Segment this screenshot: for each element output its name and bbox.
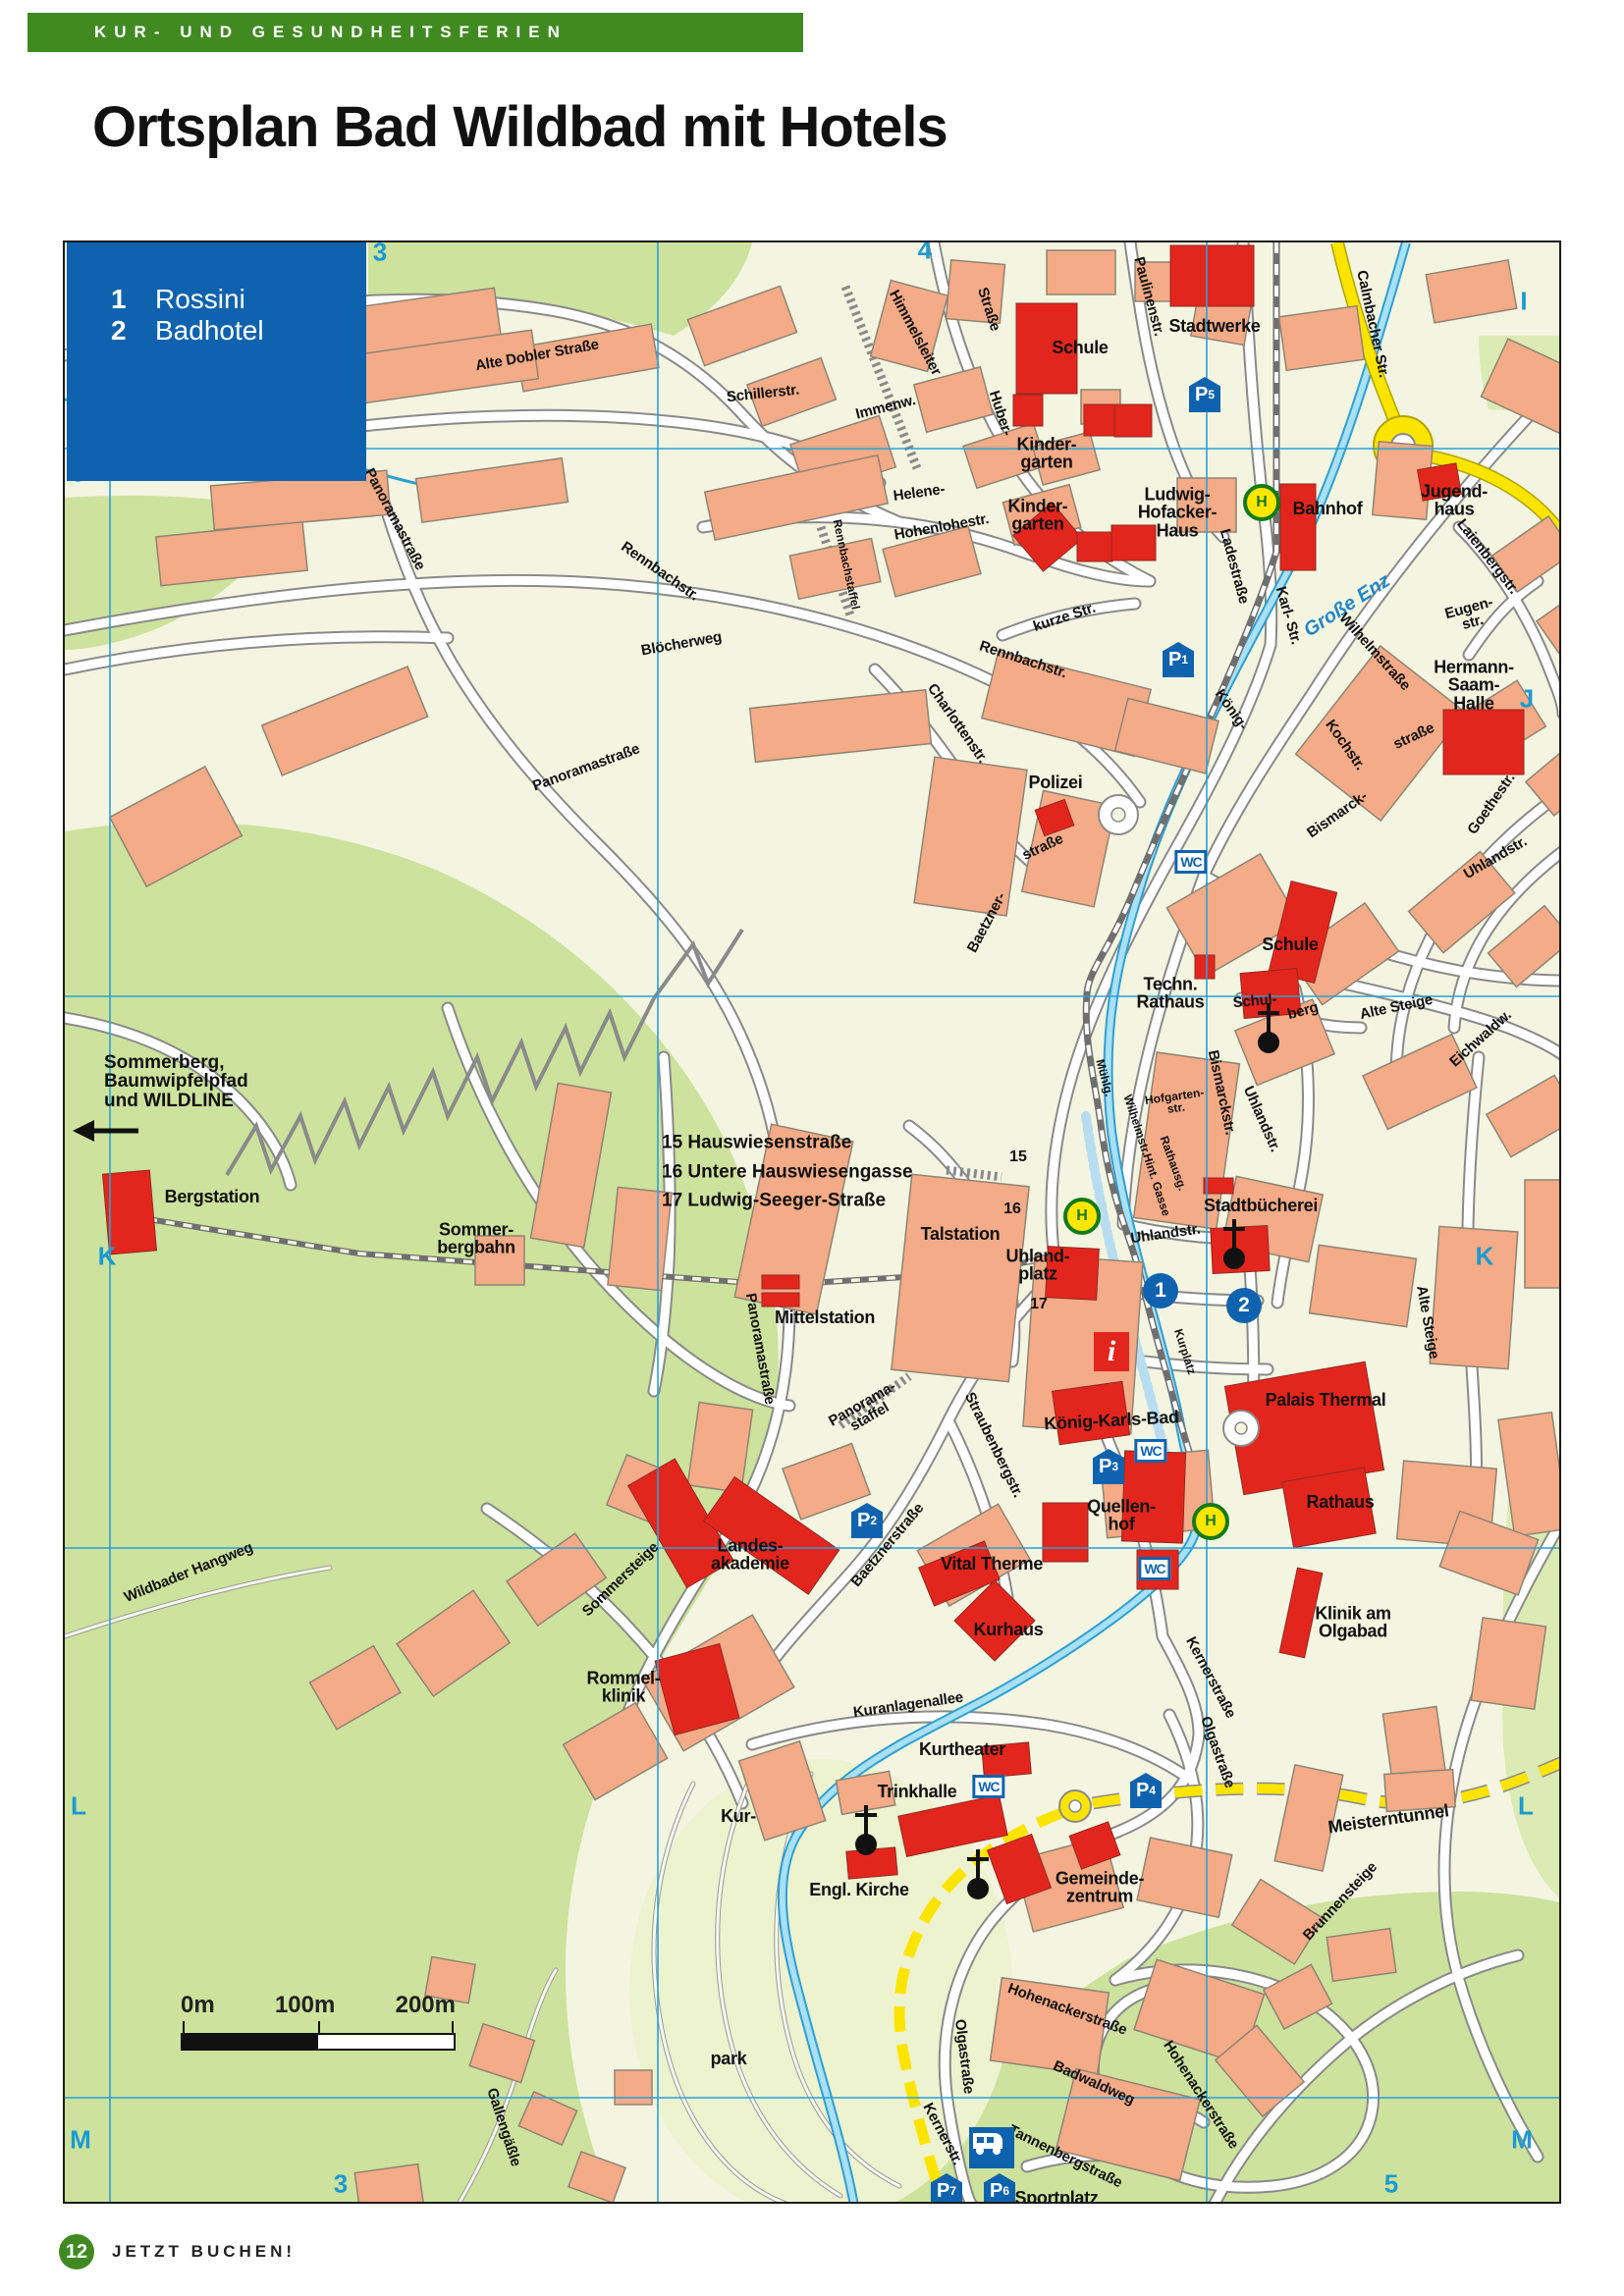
grid-label: 4 bbox=[918, 240, 932, 263]
scale-label: 0m bbox=[181, 1992, 215, 2019]
map-label: Hohenackerstraße bbox=[1005, 1981, 1128, 2038]
parking-icon-p5: P5 bbox=[1189, 377, 1220, 412]
map-label: Uhland- platz bbox=[1006, 1248, 1070, 1284]
map-legend: 1Rossini2Badhotel bbox=[67, 242, 366, 481]
scale-bar-graphic bbox=[181, 2033, 456, 2051]
grid-label: L bbox=[71, 1793, 86, 1820]
map-label: Bismarckstr. bbox=[1205, 1049, 1237, 1137]
map-label: Eichwaldw. bbox=[1447, 1007, 1514, 1070]
map-label: Sommersteige bbox=[579, 1539, 661, 1619]
map-label: Ludwig- Hofacker- Haus bbox=[1138, 485, 1217, 539]
map-label: Jugend- haus bbox=[1421, 483, 1488, 519]
wc-icon: WC bbox=[1138, 1557, 1170, 1580]
map-label: straße bbox=[1020, 831, 1065, 863]
map-label: Rathaus bbox=[1307, 1493, 1375, 1511]
map-label: Badwaldweg bbox=[1051, 2058, 1136, 2108]
grid-label: K bbox=[1476, 1244, 1494, 1270]
map-label: 17 Ludwig-Seeger-Straße bbox=[662, 1191, 886, 1209]
map-label: Stadtbücherei bbox=[1204, 1197, 1318, 1214]
map-label: 16 bbox=[1003, 1201, 1021, 1217]
map-label: Uhlandstr. bbox=[1461, 834, 1529, 882]
grid-label: M bbox=[70, 2127, 91, 2154]
page-title: Ortsplan Bad Wildbad mit Hotels bbox=[92, 94, 947, 160]
legend-item: 1Rossini bbox=[111, 284, 366, 315]
map-labels-layer: Alte Dobler StraßeSchillerstr.Himmelslei… bbox=[65, 242, 1559, 2202]
footer-cta: JETZT BUCHEN! bbox=[112, 2242, 296, 2262]
parking-icon-p6: P6 bbox=[984, 2173, 1015, 2204]
grid-label: 3 bbox=[373, 240, 387, 265]
map-label: Olgastraße bbox=[1198, 1714, 1237, 1789]
map-label: Polizei bbox=[1029, 774, 1083, 791]
church-icon bbox=[963, 1847, 993, 1900]
map-label: Straubenbergstr. bbox=[962, 1390, 1026, 1500]
wc-icon: WC bbox=[1134, 1439, 1166, 1463]
map-label: Wildbader Hangweg bbox=[122, 1540, 254, 1606]
map-label: Bismarck- bbox=[1305, 788, 1371, 840]
map-label: Schule bbox=[1052, 339, 1108, 356]
map-label: Sommer- bergbahn bbox=[437, 1221, 515, 1257]
scale-label: 200m bbox=[396, 1992, 456, 2019]
map-label: Kurhaus bbox=[974, 1621, 1044, 1638]
map-label: Rommel- klinik bbox=[587, 1670, 661, 1706]
map-label: Helene- bbox=[893, 482, 946, 504]
map-label: Baetzner- bbox=[965, 890, 1009, 955]
header-bar: KUR- UND GESUNDHEITSFERIEN bbox=[27, 13, 803, 52]
map-label: Schillerstr. bbox=[726, 383, 800, 405]
parking-icon-p4: P4 bbox=[1130, 1773, 1162, 1808]
map-label: 17 bbox=[1030, 1297, 1048, 1312]
map-label: Rennbachstr. bbox=[619, 539, 702, 604]
map-label: Panorama- staffel bbox=[827, 1379, 906, 1442]
bus-stop-icon: H bbox=[1243, 484, 1280, 521]
map-label: Charlottenstr. bbox=[925, 681, 991, 766]
map-label: Kur- bbox=[721, 1807, 756, 1825]
grid-label: L bbox=[1518, 1793, 1534, 1820]
map-label: Himmelsleiter bbox=[887, 288, 944, 378]
map-label: Große Enz bbox=[1301, 570, 1394, 641]
map-label: Eugen- str. bbox=[1443, 595, 1498, 636]
map-label: Uhlandstr. bbox=[1241, 1084, 1283, 1153]
map-label: Alte Steige bbox=[1359, 992, 1435, 1023]
map-label: 16 Untere Hauswiesengasse bbox=[662, 1162, 913, 1181]
map-label: Panoramastraße bbox=[361, 466, 427, 573]
map-label: Immenw. bbox=[854, 393, 917, 422]
map-label: Ladestraße bbox=[1218, 527, 1252, 605]
map-label: Blöcherweg bbox=[640, 629, 723, 658]
map-label: Mittelstation bbox=[775, 1308, 875, 1326]
map-label: Wilhelmstraße bbox=[1336, 611, 1413, 693]
wc-icon: WC bbox=[972, 1775, 1004, 1798]
map-label: König-Karls-Bad bbox=[1044, 1408, 1179, 1433]
map-label: Landes- akademie bbox=[711, 1537, 789, 1574]
town-map: 1Rossini2Badhotel Alte Dobler StraßeSchi… bbox=[63, 240, 1561, 2204]
wc-icon: WC bbox=[1174, 850, 1207, 874]
map-label: Kinder- garten bbox=[1008, 498, 1068, 534]
map-label: Kinder- garten bbox=[1017, 436, 1077, 472]
parking-icon-p7: P7 bbox=[931, 2173, 962, 2204]
map-label: Kurplatz bbox=[1172, 1327, 1198, 1375]
map-label: park bbox=[711, 2050, 747, 2067]
map-label: Gemeinde- zentrum bbox=[1056, 1870, 1144, 1906]
map-label: Straße bbox=[975, 286, 1003, 333]
hotel-marker-2: 2 bbox=[1226, 1288, 1262, 1323]
map-label: Alte Steige bbox=[1414, 1285, 1441, 1361]
page: KUR- UND GESUNDHEITSFERIEN Ortsplan Bad … bbox=[0, 0, 1624, 2296]
grid-label: 5 bbox=[1384, 2171, 1398, 2198]
footer: 12 JETZT BUCHEN! bbox=[59, 2234, 296, 2269]
map-label: Vital Therme bbox=[941, 1555, 1043, 1573]
map-label: Palais Thermal bbox=[1266, 1391, 1386, 1409]
map-label: Calmbacher Str. bbox=[1354, 269, 1391, 379]
map-label: Bahnhof bbox=[1293, 500, 1363, 517]
map-label: Engl. Kirche bbox=[809, 1881, 908, 1898]
map-label: Goethestr. bbox=[1465, 771, 1518, 837]
map-label: Rathausg. bbox=[1158, 1135, 1188, 1193]
scale-bar: 0m100m200m bbox=[181, 1992, 456, 2051]
hotel-marker-1: 1 bbox=[1143, 1273, 1178, 1308]
map-label: Kurtheater bbox=[919, 1740, 1005, 1758]
map-label: Quellen- hof bbox=[1087, 1498, 1156, 1534]
map-label: Tannenbergstraße bbox=[1006, 2122, 1124, 2190]
bus-stop-icon: H bbox=[1063, 1198, 1101, 1235]
grid-label: K bbox=[98, 1244, 117, 1270]
grid-label: 3 bbox=[334, 2171, 348, 2198]
map-label: Klinik am Olgabad bbox=[1315, 1605, 1390, 1641]
church-icon bbox=[851, 1803, 881, 1856]
grid-label: M bbox=[1511, 2127, 1533, 2154]
map-label: Talstation bbox=[921, 1225, 1001, 1243]
map-label: Huber- bbox=[986, 389, 1014, 438]
church-icon bbox=[1254, 1001, 1283, 1054]
map-label: Panoramastraße bbox=[530, 741, 641, 794]
map-label: Sommerberg, Baumwipfelpfad und WILDLINE bbox=[104, 1053, 248, 1110]
header-kicker: KUR- UND GESUNDHEITSFERIEN bbox=[27, 23, 568, 42]
map-label: Sportplatz bbox=[1015, 2189, 1099, 2204]
parking-icon-p2: P2 bbox=[851, 1503, 883, 1538]
map-label: Rennbachstr. bbox=[978, 638, 1069, 680]
scale-label: 100m bbox=[275, 1992, 335, 2019]
map-label: Hofgarten- str. bbox=[1144, 1087, 1206, 1119]
map-label: Wilhelmstr. bbox=[1121, 1094, 1152, 1157]
map-label: 15 bbox=[1009, 1149, 1027, 1165]
map-label: Trinkhalle bbox=[877, 1783, 956, 1800]
map-label: Kochstr. bbox=[1323, 718, 1368, 774]
legend-item-number: 1 bbox=[111, 284, 155, 315]
legend-item-number: 2 bbox=[111, 315, 155, 347]
grid-label: I bbox=[1520, 289, 1527, 315]
map-label: Olgastraße bbox=[952, 2018, 976, 2095]
map-label: Hermann- Saam-Halle bbox=[1432, 658, 1517, 712]
map-label: berg bbox=[1286, 1000, 1321, 1023]
page-number-badge: 12 bbox=[59, 2234, 94, 2269]
camper-parking-icon bbox=[969, 2127, 1014, 2168]
map-label: Gallengäßle bbox=[484, 2086, 523, 2168]
map-label: 15 Hauswiesenstraße bbox=[662, 1133, 851, 1151]
grid-label: J bbox=[1520, 686, 1534, 713]
map-label: Uhlandstr. bbox=[1130, 1221, 1202, 1246]
map-label: Mühlg. bbox=[1094, 1058, 1115, 1098]
map-label: Hohenlohestr. bbox=[893, 511, 991, 543]
parking-icon-p3: P3 bbox=[1093, 1449, 1124, 1484]
map-label: Hohenackerstraße bbox=[1161, 2038, 1241, 2151]
map-label: Laienbergstr. bbox=[1454, 516, 1521, 597]
map-label: straße bbox=[1391, 721, 1436, 752]
legend-item: 2Badhotel bbox=[111, 315, 366, 347]
legend-item-name: Rossini bbox=[155, 284, 245, 315]
map-label: Meisterntunnel bbox=[1326, 1801, 1449, 1836]
map-label: Kuranlagenallee bbox=[852, 1690, 964, 1721]
map-label: Techn. Rathaus bbox=[1137, 976, 1205, 1012]
info-icon: i bbox=[1094, 1332, 1129, 1371]
map-label: Kernerstraße bbox=[1183, 1634, 1238, 1721]
map-label: Karl- Str. bbox=[1272, 585, 1303, 646]
map-label: Stadtwerke bbox=[1168, 317, 1260, 335]
map-label: Bergstation bbox=[165, 1188, 260, 1205]
bus-stop-icon: H bbox=[1192, 1503, 1229, 1540]
map-label: König- bbox=[1212, 687, 1250, 733]
scale-labels: 0m100m200m bbox=[181, 1992, 456, 2019]
map-label: Brunnensteige bbox=[1300, 1859, 1380, 1943]
map-label: Rennbachstaffel bbox=[831, 518, 861, 611]
legend-item-name: Badhotel bbox=[155, 315, 264, 347]
map-label: Panoramastraße bbox=[743, 1292, 778, 1406]
church-icon bbox=[1219, 1217, 1249, 1270]
map-label: Alte Dobler Straße bbox=[474, 337, 600, 373]
map-label: Paulinenstr. bbox=[1131, 255, 1166, 338]
map-label: Schule bbox=[1262, 935, 1318, 953]
map-label: Kernerstr. bbox=[920, 2101, 965, 2167]
parking-icon-p1: P1 bbox=[1163, 642, 1194, 677]
map-label: Hint. Gasse bbox=[1141, 1152, 1172, 1218]
map-label: kurze Str. bbox=[1031, 601, 1097, 635]
